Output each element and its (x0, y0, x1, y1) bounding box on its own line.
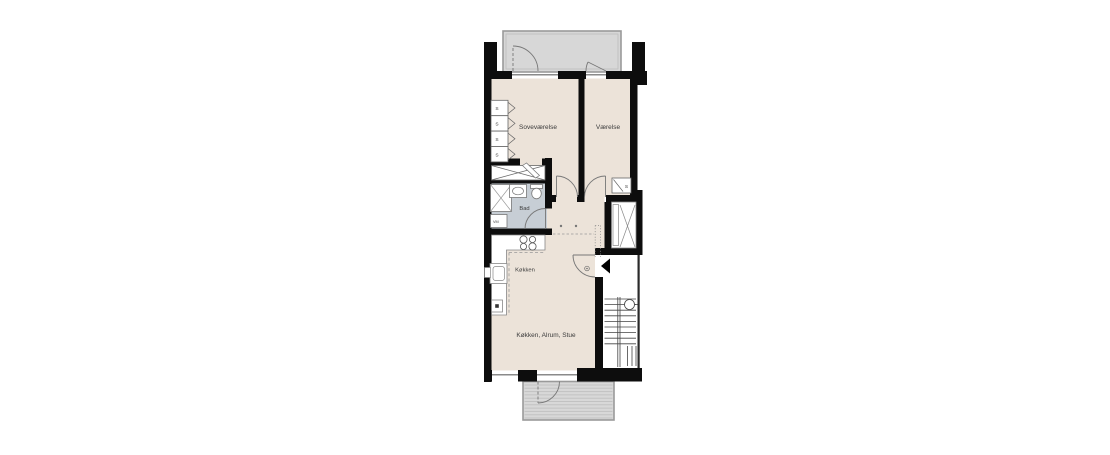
appliance-icon (492, 300, 503, 312)
wardrobe-label: S (495, 106, 498, 112)
wardrobe-icon: S (612, 178, 631, 193)
wall-top-b (558, 71, 586, 79)
floor-plan-canvas: S S S S (0, 0, 1110, 455)
room-label-vaerelse: Værelse (596, 124, 621, 131)
wall-top-a (491, 71, 512, 79)
closet-x-icon (492, 163, 546, 180)
wall-stub-top-left (484, 42, 497, 72)
hall-dot (560, 225, 562, 227)
washing-machine-icon: VM (491, 215, 508, 228)
room-label-sovevaerelse: Soveværelse (519, 124, 557, 131)
toilet-icon (531, 185, 543, 199)
wardrobe-label: S (495, 137, 498, 143)
wall-bath-bottom (484, 229, 552, 236)
balcony-bottom (523, 382, 614, 421)
wall-stair-right-thin (638, 255, 640, 368)
wall-stub-top-right (632, 42, 645, 72)
staircase-icon (605, 297, 638, 367)
wall-closet-bath-divider (491, 180, 548, 184)
wall-hall-b (577, 195, 585, 202)
balcony-top (503, 31, 621, 72)
entrance-arrow-icon (601, 259, 610, 274)
wall-entrance-lower (595, 277, 603, 371)
wall-party (579, 78, 585, 197)
wall-elevator-right (636, 190, 643, 255)
wardrobe-label: S (495, 152, 498, 158)
room-label-koekken: Køkken (515, 268, 535, 274)
wall-bottom-b (518, 370, 537, 382)
wall-bottom-a (484, 370, 492, 382)
wall-below-elevator (595, 248, 642, 255)
washing-machine-label: VM (493, 220, 499, 224)
wall-bottom-c (577, 368, 642, 382)
room-label-bad: Bad (519, 206, 529, 212)
shower-icon (491, 185, 512, 212)
handrail-curl-icon (625, 300, 635, 310)
room-label-stue: Køkken, Alrum, Stue (516, 332, 576, 339)
hall-dot (575, 225, 577, 227)
wardrobe-label: S (625, 184, 628, 190)
wardrobe-label: S (495, 122, 498, 128)
bath-sink-icon (510, 185, 527, 198)
door-closer-dot (586, 268, 588, 270)
elevator-icon (612, 202, 637, 248)
floor-plan-svg: S S S S (0, 0, 1110, 455)
wall-hall-right (605, 202, 612, 249)
